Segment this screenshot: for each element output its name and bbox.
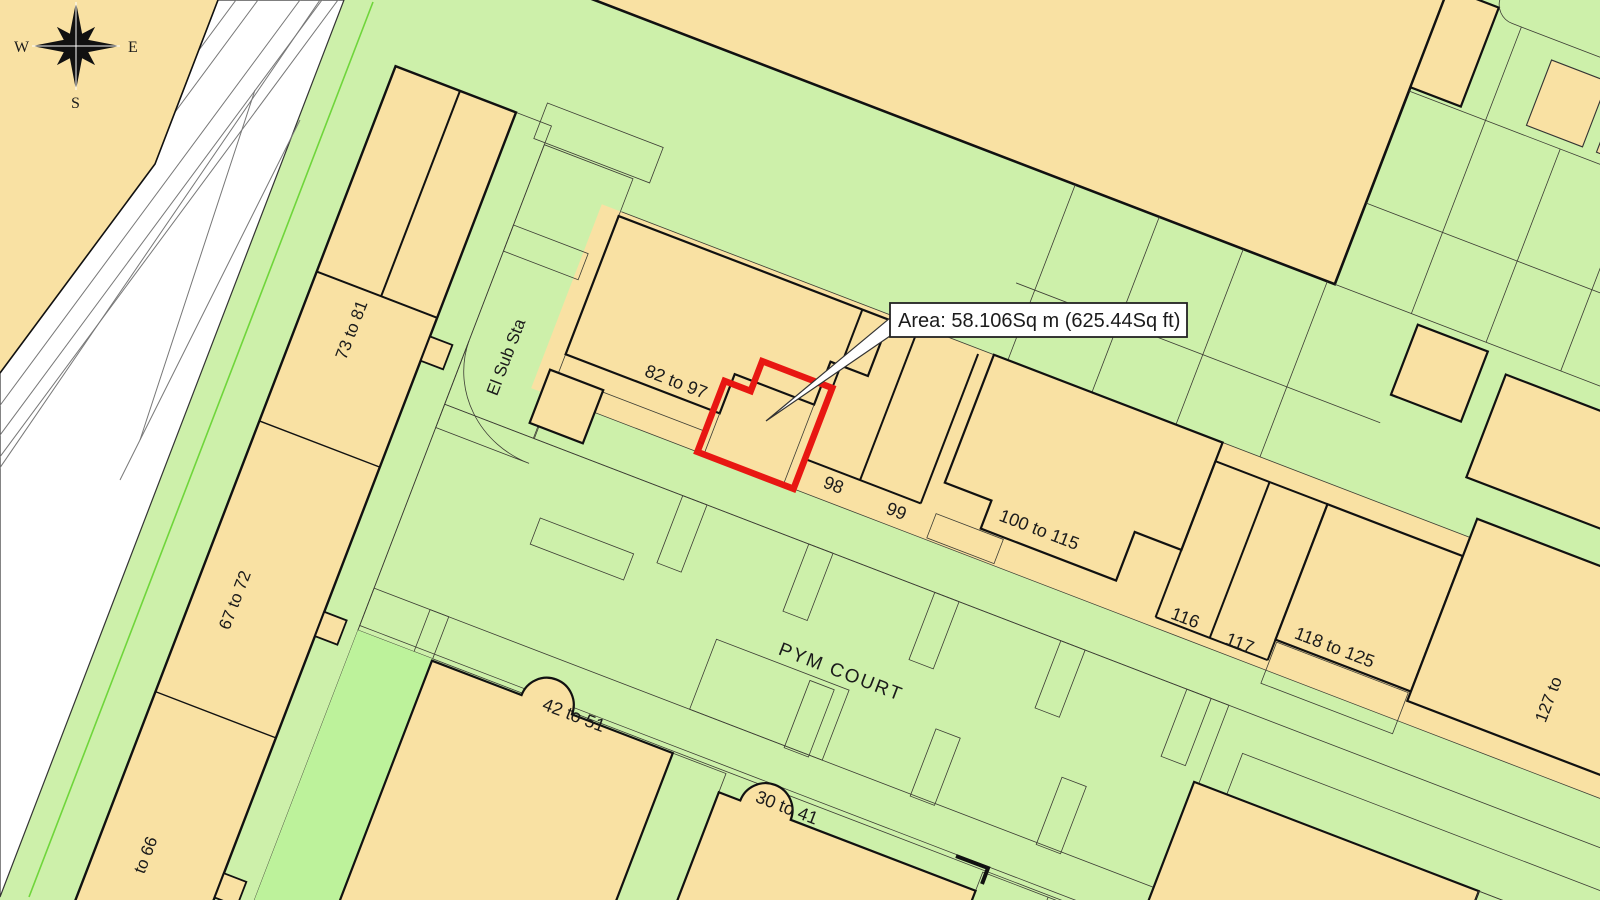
compass-south: S bbox=[71, 95, 80, 112]
map-canvas[interactable]: 82 to 97 98 99 100 to 115 116 117 118 to… bbox=[0, 0, 1600, 900]
compass-east: E bbox=[128, 39, 138, 56]
os-map: 82 to 97 98 99 100 to 115 116 117 118 to… bbox=[0, 0, 1600, 900]
compass-west: W bbox=[14, 39, 30, 56]
area-tooltip-text: Area: 58.106Sq m (625.44Sq ft) bbox=[898, 310, 1180, 332]
